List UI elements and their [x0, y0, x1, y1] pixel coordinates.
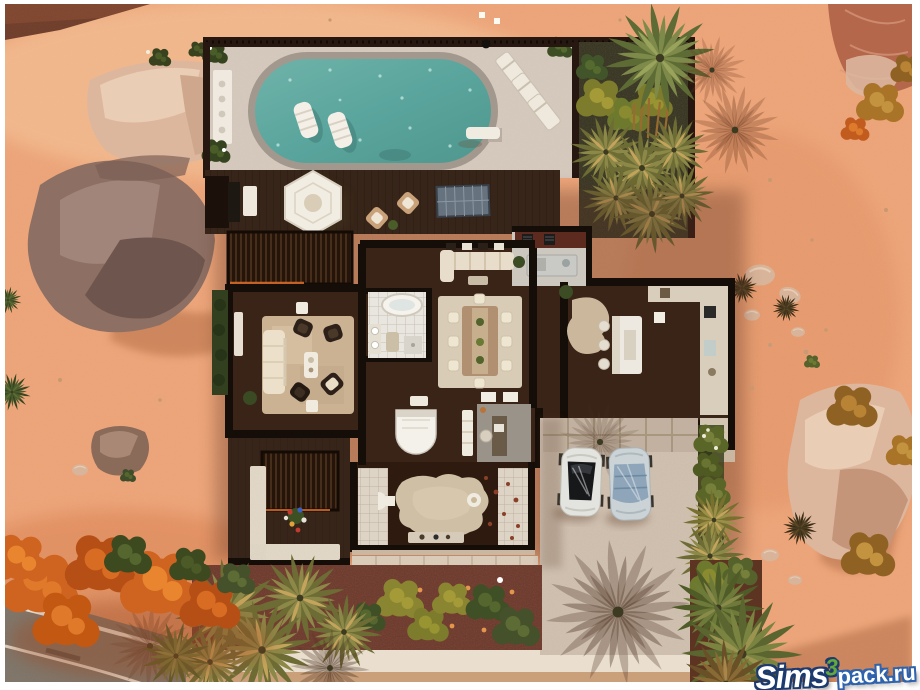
lot-aerial-view — [0, 0, 920, 690]
piano-bench — [410, 396, 428, 406]
bar-stool — [599, 359, 610, 370]
side-table — [296, 302, 308, 314]
stove — [704, 306, 716, 318]
potted-plant — [243, 391, 257, 405]
wall-art — [654, 312, 665, 323]
watermark-brand: Sims — [755, 656, 829, 690]
poolside-bar — [213, 70, 232, 144]
potted-plant — [559, 285, 573, 299]
potted-plant — [388, 220, 398, 230]
side-table — [306, 400, 318, 412]
sofa — [263, 330, 285, 394]
bedroom — [358, 468, 528, 545]
fence-lamp — [494, 18, 500, 24]
bookshelf — [462, 410, 473, 456]
wall-board — [503, 392, 518, 402]
coffee-table — [304, 352, 318, 378]
pergola — [228, 232, 352, 284]
solar-panel — [436, 185, 489, 217]
potted-plant — [513, 256, 525, 268]
fence-lamp — [479, 12, 485, 18]
wall-board — [481, 392, 496, 402]
upper-deck — [205, 170, 560, 241]
fence-lantern — [482, 40, 491, 49]
wall-art — [446, 243, 456, 250]
sims-lot-screenshot: Sims3pack.ru — [0, 0, 920, 690]
deck-planter — [205, 176, 229, 228]
sink — [704, 340, 716, 356]
desk-chair — [480, 430, 492, 442]
bar-stool — [599, 340, 610, 351]
coffee-table — [468, 276, 488, 285]
swimming-pool — [255, 59, 491, 163]
desk — [492, 416, 507, 456]
car-white-convertible — [553, 447, 606, 523]
wall-art — [494, 243, 504, 250]
bath-mat — [386, 332, 399, 352]
bar-stool — [599, 321, 610, 332]
dining-room — [438, 294, 522, 388]
wall-art — [462, 243, 472, 250]
car-blue-coupe — [603, 447, 655, 527]
bathroom — [368, 292, 426, 358]
pool-fence-left — [203, 42, 210, 178]
media-console — [234, 312, 243, 356]
wall-art — [478, 243, 488, 250]
outdoor-cabinet — [243, 186, 257, 216]
car-glass-roof — [611, 463, 648, 503]
watermark-domain: pack.ru — [837, 662, 916, 688]
